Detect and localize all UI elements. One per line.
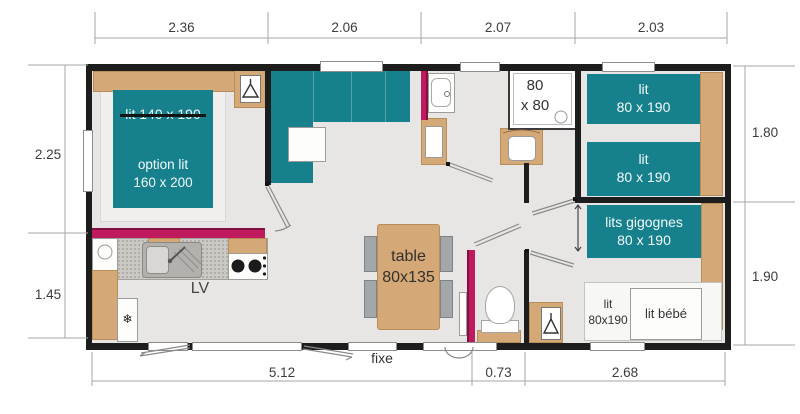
sliding-bay-window: [192, 342, 302, 351]
kitchen-counter-back: [92, 228, 265, 238]
dim-bottom-2: 0.73: [472, 364, 525, 382]
window-living: [320, 61, 383, 72]
chair: [440, 280, 453, 318]
kitchen-corner-unit: [92, 238, 118, 271]
wall-right: [725, 64, 731, 350]
twin-bed-2-label: lit80 x 190: [587, 150, 700, 186]
dim-right-2: 1.90: [742, 268, 788, 286]
master-option-label: option lit160 x 200: [113, 156, 213, 191]
dim-top-1: 2.36: [95, 19, 268, 37]
sink-bowl: [146, 246, 169, 274]
wc-accent-wall: [467, 250, 475, 343]
dim-bottom-1: 5.12: [92, 364, 472, 382]
master-bed-label: lit 140 x 190: [111, 105, 215, 123]
toilet-bowl: [485, 286, 515, 324]
master-headboard-shelf: [93, 71, 236, 92]
bunk-bed-label: lits gigognes80 x 190: [587, 213, 701, 249]
wall-wc-right: [524, 250, 529, 343]
kitchen-cabinet: [92, 270, 118, 340]
dim-left-1: 2.25: [25, 146, 71, 164]
baby-bed-label: lit bébé: [630, 306, 702, 323]
dishwasher-label: LV: [183, 279, 217, 300]
window-bathroom: [460, 62, 500, 72]
shower-label: 80x 80: [512, 76, 558, 115]
kitchen-shelf: [228, 238, 267, 254]
vanity-basin: [508, 136, 536, 161]
wall-left: [86, 64, 92, 350]
twin-bed-1-label: lit80 x 190: [587, 80, 700, 116]
wall-hall-upper: [524, 163, 529, 203]
bathroom-accent-wall: [421, 64, 428, 120]
wc-door-leaf: [459, 292, 467, 336]
bathroom-cabinet-front: [425, 126, 443, 158]
hanger-icon: [241, 76, 260, 102]
floorplan-canvas: ❄ LV: [0, 0, 800, 414]
dim-top-4: 2.03: [575, 19, 727, 37]
window-master: [83, 130, 93, 192]
window-twin-bedroom: [602, 62, 655, 72]
snowflake-icon: ❄: [117, 312, 138, 328]
dim-top-2: 2.06: [268, 19, 421, 37]
dim-top-3: 2.07: [421, 19, 575, 37]
sofa-chaise-cushion: [288, 127, 326, 162]
fixed-window-label: fixe: [360, 349, 404, 367]
washbasin-bowl: [431, 78, 451, 107]
pullout-bed-label: lit80x190: [586, 297, 630, 328]
hob: [228, 253, 268, 280]
dim-right-1: 1.80: [742, 124, 788, 142]
wall-master-living: [265, 64, 271, 185]
hanger-icon: [542, 309, 560, 338]
window-bunk-bedroom: [590, 342, 645, 351]
dim-bottom-3: 2.68: [525, 364, 725, 382]
wall-bedrooms-divider: [575, 197, 725, 203]
chair: [440, 236, 453, 272]
dim-left-2: 1.45: [25, 286, 71, 304]
sofa-back: [271, 71, 410, 122]
chair: [364, 236, 377, 272]
chair: [364, 280, 377, 318]
twin-headboard-band: [700, 72, 723, 196]
window-kitchen: [148, 342, 188, 351]
entry-door: [423, 342, 497, 351]
table-label: table80x135: [377, 247, 440, 289]
wall-bath-bedroom: [575, 64, 581, 203]
